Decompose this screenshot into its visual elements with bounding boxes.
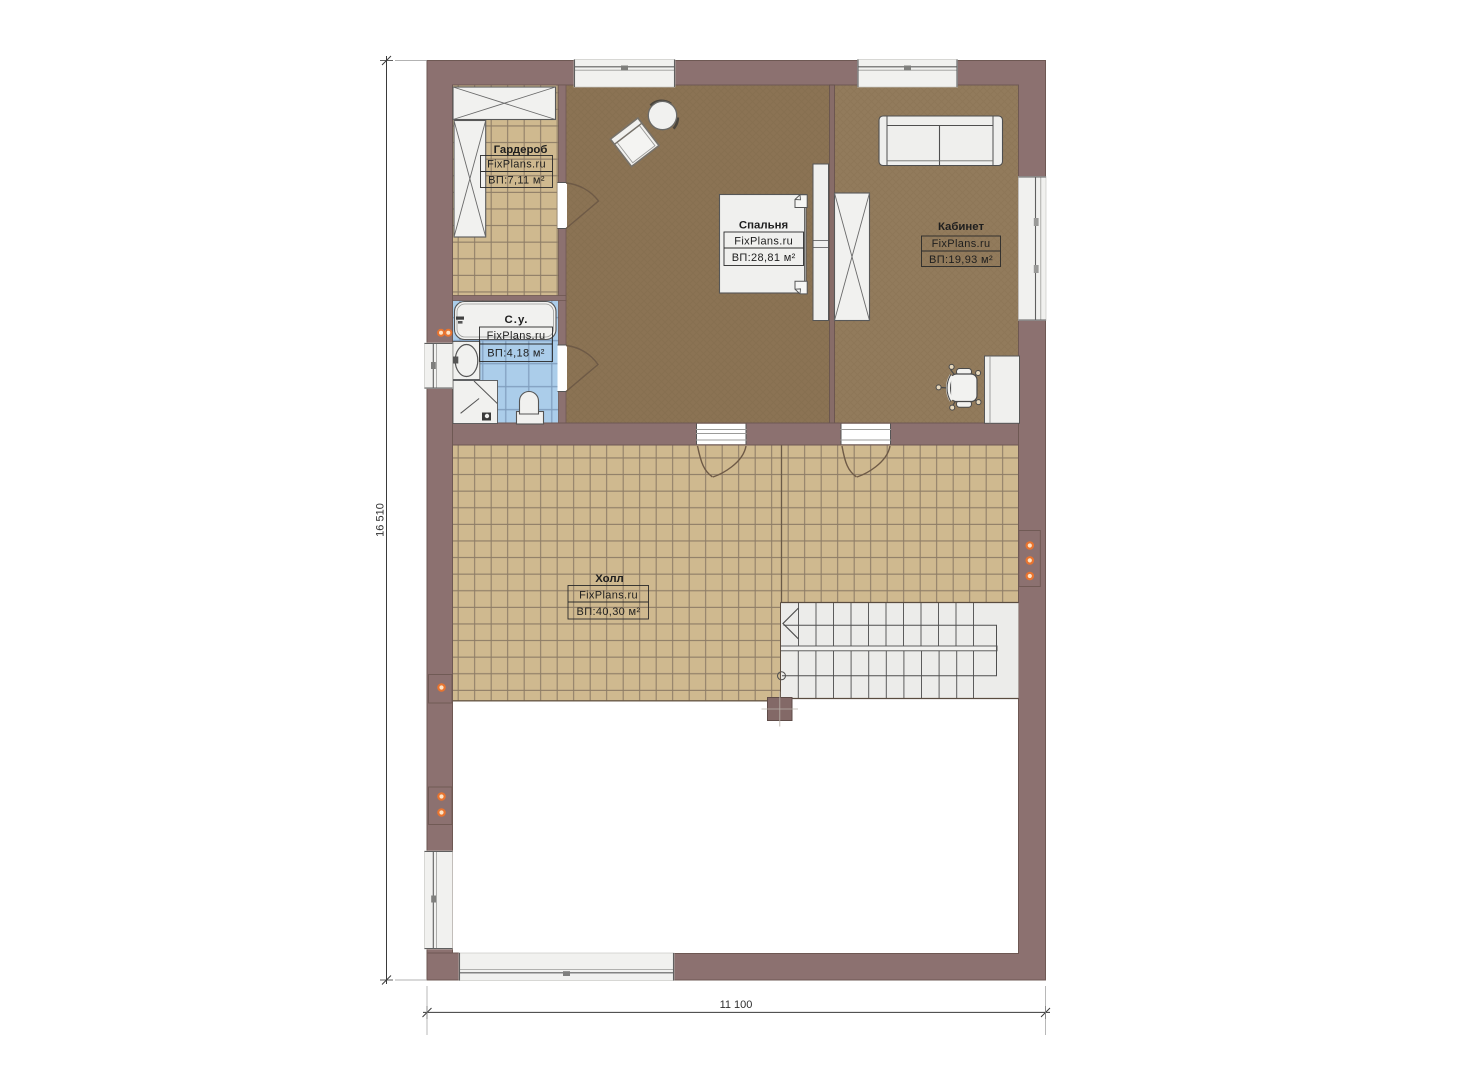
svg-text:Холл: Холл	[595, 573, 624, 585]
svg-text:ВП:28,81 м²: ВП:28,81 м²	[732, 252, 796, 264]
svg-text:Кабинет: Кабинет	[938, 221, 985, 233]
svg-text:FixPlans.ru: FixPlans.ru	[932, 238, 991, 250]
svg-text:С.у.: С.у.	[505, 314, 529, 326]
svg-text:Спальня: Спальня	[739, 220, 788, 232]
svg-text:FixPlans.ru: FixPlans.ru	[579, 590, 638, 602]
svg-text:ВП:4,18 м²: ВП:4,18 м²	[487, 348, 545, 360]
svg-text:FixPlans.ru: FixPlans.ru	[487, 330, 546, 342]
svg-text:16 510: 16 510	[375, 503, 387, 537]
svg-text:ВП:7,11 м²: ВП:7,11 м²	[488, 175, 545, 187]
svg-text:11 100: 11 100	[720, 999, 753, 1011]
svg-text:FixPlans.ru: FixPlans.ru	[487, 159, 546, 171]
svg-text:ВП:40,30 м²: ВП:40,30 м²	[577, 606, 641, 618]
svg-text:Гардероб: Гардероб	[494, 144, 548, 156]
svg-text:FixPlans.ru: FixPlans.ru	[734, 236, 793, 248]
svg-text:ВП:19,93 м²: ВП:19,93 м²	[929, 254, 993, 266]
